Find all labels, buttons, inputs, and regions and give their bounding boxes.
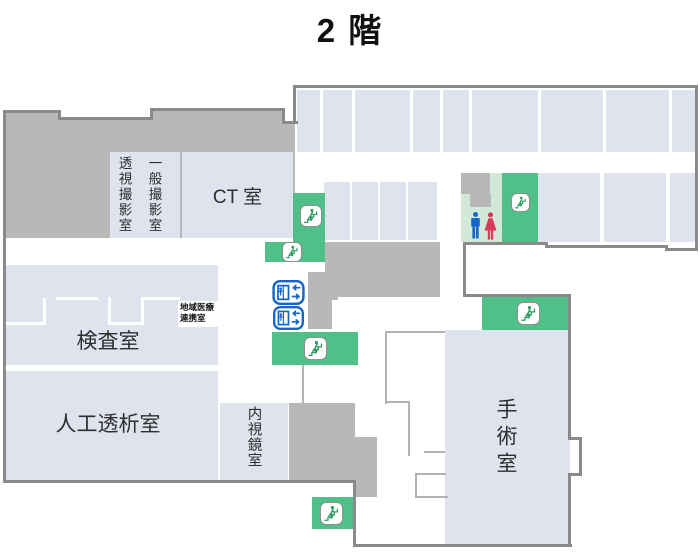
outline-border [3,110,6,483]
floor-map-2f: 2 階 一般撮影室 透視撮影室 CT 室 検査室 地域医療 連携室 人工透析室 [0,0,700,552]
outline-border [353,544,572,547]
room-block [413,90,440,152]
wall-segment [385,401,410,403]
outline-border [293,85,296,124]
room-label-ct: CT 室 [213,182,262,209]
corridor-block-shaft [308,272,338,300]
outline-border [58,117,153,120]
elevator-icon [272,306,305,330]
corridor-block-bottom [289,403,355,480]
outline-border [293,85,698,88]
outline-border [353,480,356,547]
corridor-block-center [325,242,440,297]
restroom-wall-block [470,194,491,207]
room-block [604,173,666,242]
outline-border [3,110,61,113]
stairs-icon [300,205,322,227]
room-block [541,90,603,152]
outline-border [665,248,698,251]
room-block [352,182,378,240]
room-block [323,90,352,152]
toilet-woman-icon [483,212,498,240]
corridor-block-shaft [308,300,332,329]
room-block [538,173,600,242]
stairs-icon [517,302,540,325]
outline-border [568,294,571,440]
room-label-fluoroscopy: 透視撮影室 [117,156,131,234]
room-block [472,90,538,152]
room-block [324,182,350,240]
wall-segment [56,297,98,300]
outline-border [463,242,547,245]
room-block [672,90,695,152]
room-block [670,173,695,242]
room-ct: CT 室 [182,152,293,238]
wall-segment [415,473,417,498]
outline-border [695,85,698,251]
room-label-dialysis: 人工透析室 [3,408,213,438]
stairs-icon [304,337,327,360]
wall-segment [302,365,304,404]
wall-segment [385,331,387,404]
wall-segment [5,322,45,325]
restroom-wall-block [461,173,490,194]
outline-border [463,294,571,297]
stairs-icon [282,242,302,262]
wall-segment [415,473,446,475]
stairs-icon [320,502,343,525]
room-block [443,90,469,152]
page-title: 2 階 [0,4,700,52]
room-label-surgery: 手術室 [495,398,516,479]
outline-border [545,245,667,248]
wall-segment [408,401,410,456]
outline-border [463,242,466,297]
room-regional-medical: 地域医療 連携室 [178,301,218,327]
stairs-icon [511,193,530,212]
wall-notch [61,104,150,117]
wall-segment [144,297,180,300]
room-label-endoscopy: 内視鏡室 [246,406,261,468]
outline-border [3,480,356,483]
wall-segment [141,297,144,325]
room-label-regional-medical-1: 地域医療 [180,302,218,313]
wall-segment [385,331,445,333]
wall-segment [43,298,46,325]
toilet-man-icon [470,211,481,240]
elevator-icon [272,280,305,305]
wall-segment [108,297,111,325]
room-label-general-xray: 一般撮影室 [147,156,161,234]
wall-segment [111,322,141,325]
outline-border [568,473,571,547]
room-block [408,182,437,240]
room-label-exam: 検査室 [3,325,213,355]
outline-border [150,108,285,111]
corridor-block-bottom [355,437,377,497]
outline-border [579,437,582,476]
room-block [380,182,406,240]
wall-segment [424,451,445,453]
room-block [606,90,669,152]
room-label-regional-medical-2: 連携室 [180,313,218,324]
room-block [355,90,410,152]
wall-segment [415,496,448,498]
room-block [297,90,320,152]
